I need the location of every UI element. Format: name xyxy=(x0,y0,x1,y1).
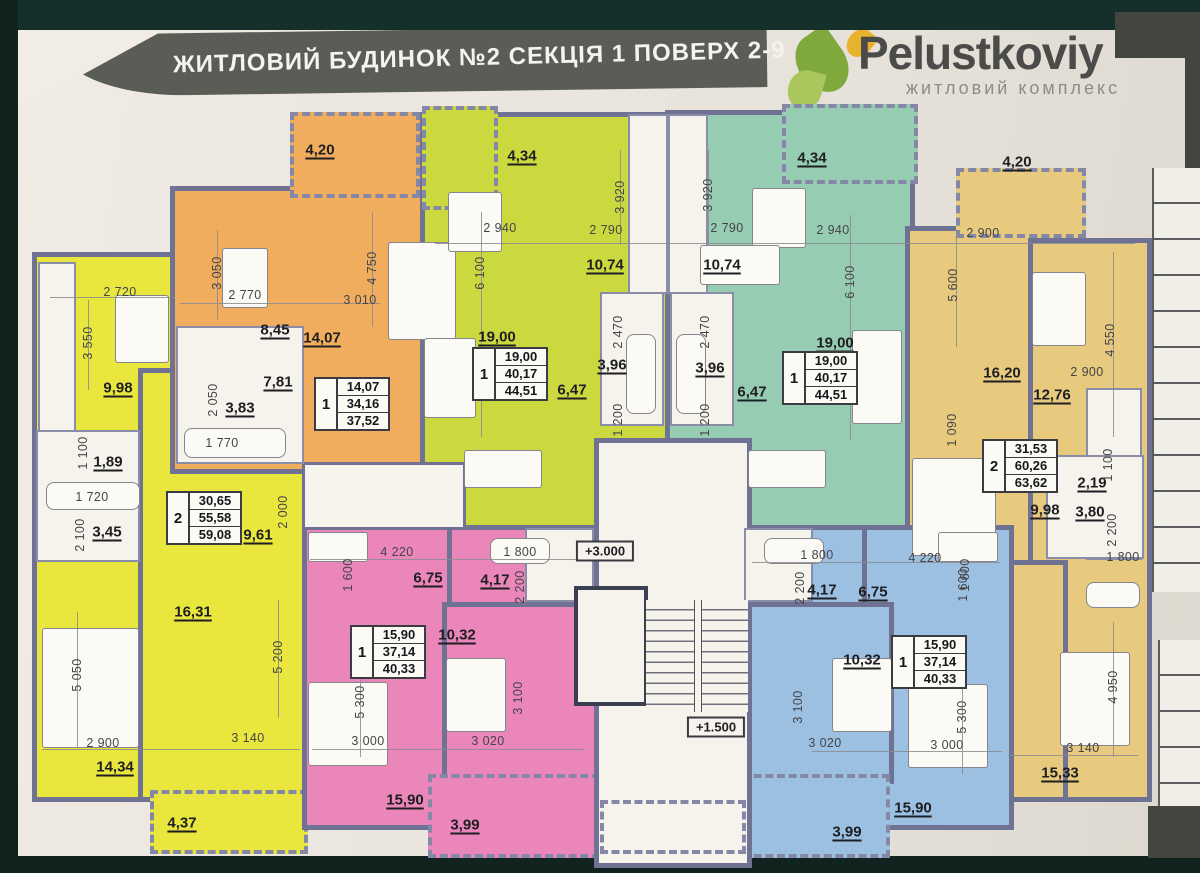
dining-table xyxy=(752,188,806,248)
bed xyxy=(852,330,902,424)
dining-table xyxy=(222,248,268,308)
dimension-line xyxy=(372,212,373,327)
bathtub xyxy=(184,428,286,458)
bed xyxy=(42,628,139,748)
dimension-line xyxy=(956,232,957,347)
dimension-line xyxy=(435,243,1135,244)
balcony-yellow xyxy=(150,790,308,854)
balcony-pink xyxy=(428,774,600,858)
dimension-line xyxy=(77,612,78,747)
balcony-tan xyxy=(956,168,1086,238)
dimension-line xyxy=(752,562,1000,563)
dimension-line xyxy=(850,215,851,440)
dimension-line xyxy=(708,150,709,245)
stair-flight-right xyxy=(700,600,748,712)
dining-table xyxy=(832,658,892,732)
scanned-floor-plan-page: ЖИТЛОВИЙ БУДИНОК №2 СЕКЦІЯ 1 ПОВЕРХ 2-9 … xyxy=(0,0,1200,873)
dimension-line xyxy=(1113,622,1114,757)
kitchen-counter-yellow xyxy=(38,262,76,432)
dimension-line xyxy=(217,230,218,320)
bathtub xyxy=(764,538,824,564)
entry-hall-zone xyxy=(302,462,466,530)
dining-table xyxy=(446,658,506,732)
side-ruler-bottom xyxy=(1158,640,1200,806)
dark-block-right-edge xyxy=(1185,58,1200,170)
dimension-line xyxy=(812,751,1002,752)
dimension-line xyxy=(962,664,963,774)
balcony-blue xyxy=(742,774,890,858)
side-ruler-top xyxy=(1152,168,1200,592)
elevator-shaft xyxy=(574,586,648,706)
bed xyxy=(424,338,476,418)
wardrobe xyxy=(308,532,368,562)
bathtub xyxy=(676,334,706,414)
dimension-line xyxy=(360,652,361,757)
bathtub xyxy=(46,482,140,510)
paper-corner xyxy=(18,28,168,110)
photo-edge-left xyxy=(0,0,18,873)
bathtub xyxy=(490,538,550,564)
photo-edge-top xyxy=(0,0,1200,30)
dimension-line xyxy=(1008,755,1138,756)
dimension-line xyxy=(42,749,300,750)
bed xyxy=(388,242,456,340)
balcony-teal xyxy=(782,104,918,184)
wardrobe xyxy=(464,450,542,488)
bathroom-tan xyxy=(1046,455,1144,559)
dimension-line xyxy=(312,749,584,750)
dimension-line xyxy=(310,559,585,560)
bed xyxy=(908,684,988,768)
wardrobe xyxy=(748,450,826,488)
dimension-line xyxy=(620,150,621,245)
stair-flight-left xyxy=(646,600,694,712)
bathtub xyxy=(626,334,656,414)
wardrobe xyxy=(938,532,998,562)
dimension-line xyxy=(278,600,279,718)
logo-subtitle: житловий комплекс xyxy=(906,78,1120,99)
bathtub xyxy=(1086,582,1140,608)
dimension-line xyxy=(50,297,175,298)
page-title: ЖИТЛОВИЙ БУДИНОК №2 СЕКЦІЯ 1 ПОВЕРХ 2-9 xyxy=(173,37,764,79)
balcony-orange xyxy=(290,112,420,198)
stair-divider xyxy=(694,600,702,712)
dimension-line xyxy=(180,303,380,304)
dark-block-top-right xyxy=(1115,12,1200,58)
sofa xyxy=(700,245,780,285)
dark-block-bottom-right xyxy=(1148,806,1200,858)
bed xyxy=(308,682,388,766)
kitchen-strip-lime xyxy=(628,114,668,294)
bed xyxy=(1060,652,1130,746)
dimension-line xyxy=(88,300,89,390)
dining-table xyxy=(115,295,169,363)
dimension-line xyxy=(1113,252,1114,437)
logo-name: Pelustkoviy xyxy=(858,26,1103,80)
dimension-line xyxy=(481,212,482,437)
entrance-porch xyxy=(600,800,746,854)
dining-table xyxy=(1032,272,1086,346)
